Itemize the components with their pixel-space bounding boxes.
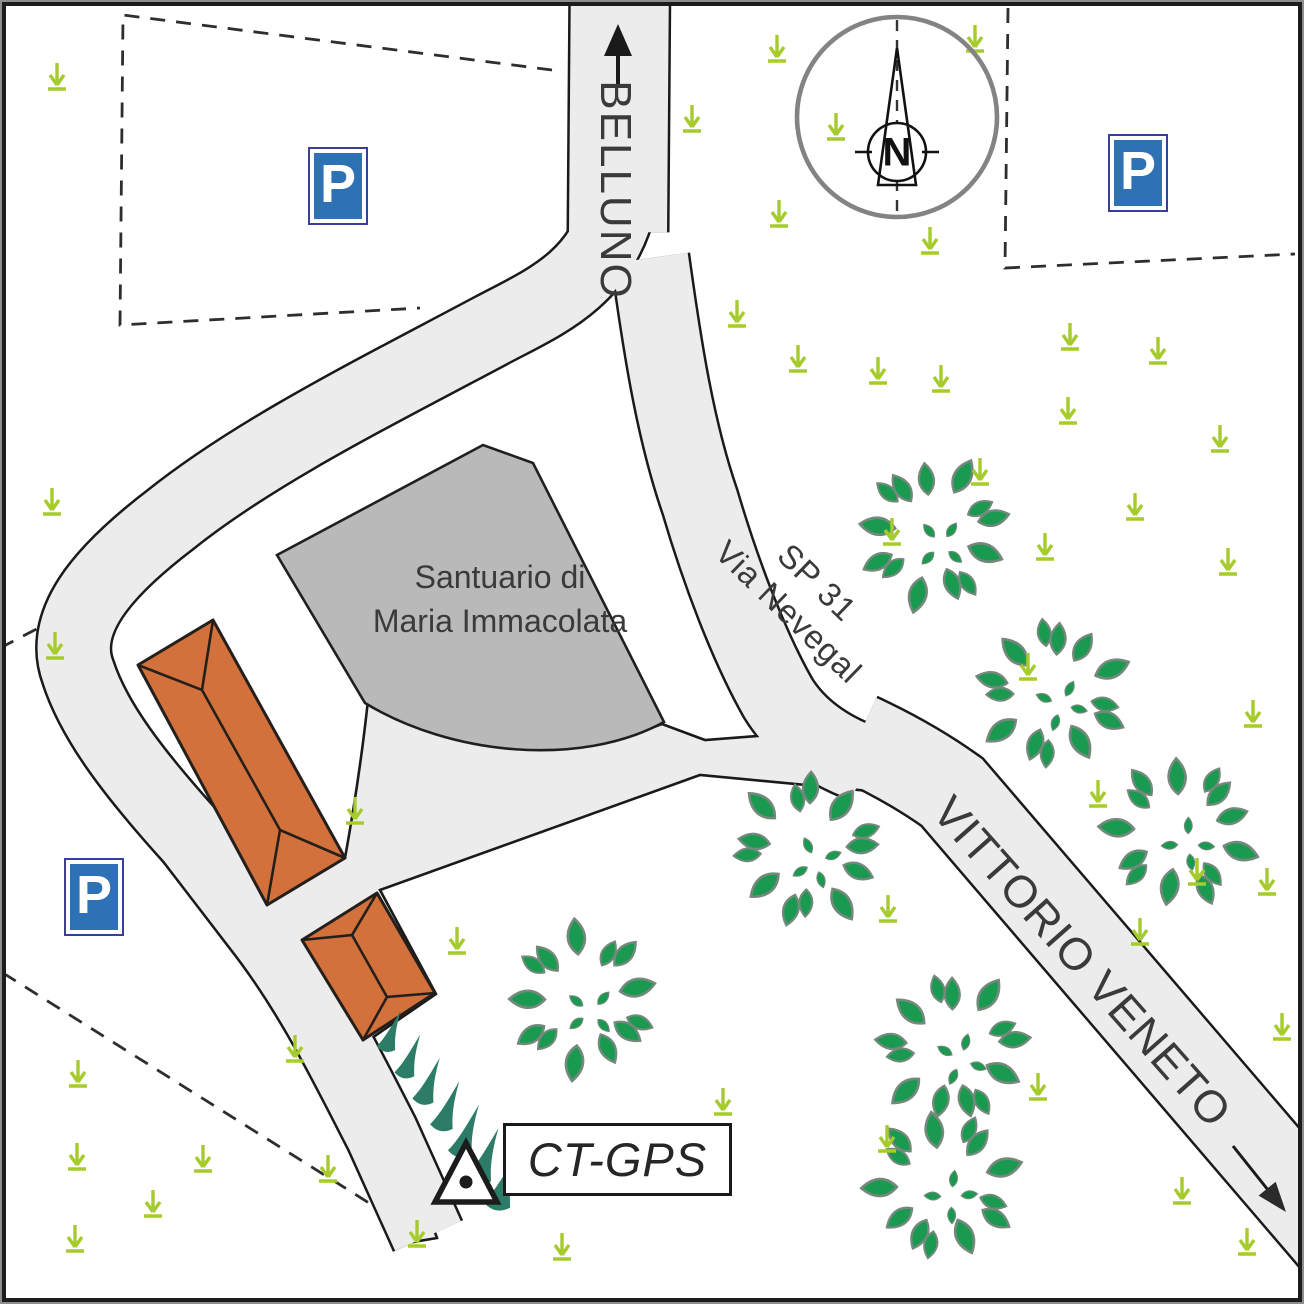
tree-leaf: [861, 1178, 897, 1196]
grass-tuft-icon: [1238, 1228, 1256, 1254]
tree-leaf: [841, 858, 876, 884]
grass-tuft-icon: [48, 63, 66, 89]
tree-inner-leaf: [801, 836, 815, 854]
grass-tuft-icon: [1173, 1177, 1191, 1203]
tree-leaf: [1215, 804, 1250, 828]
grass-tuft-icon: [43, 488, 61, 514]
parking-sign-face: P: [1114, 140, 1162, 206]
tree-inner-leaf: [961, 1190, 978, 1200]
tree-leaf: [566, 918, 587, 955]
grass-tuft-icon: [1029, 1073, 1047, 1099]
tree-inner-leaf: [1186, 853, 1196, 871]
site-map: BELLUNO SP 31Via Nevegal VITTORIO VENETO…: [0, 0, 1304, 1304]
tree-inner-leaf: [824, 849, 842, 862]
parking-sign-face: P: [314, 153, 362, 219]
grass-tuft-icon: [714, 1088, 732, 1114]
tree-inner-leaf: [919, 549, 936, 566]
tree-leaf: [745, 867, 783, 903]
parking-sign-icon-northwest: P: [308, 147, 368, 225]
parking-sign-letter: P: [76, 868, 112, 922]
grass-tuft-icon: [1219, 548, 1237, 574]
tree-leaf: [1068, 630, 1098, 665]
tree-leaf: [509, 991, 545, 1008]
tree-leaf: [917, 462, 936, 495]
tree-leaf: [737, 831, 770, 851]
tree-icon: [509, 918, 657, 1082]
tree-inner-leaf: [568, 1015, 586, 1031]
tree-inner-leaf: [944, 521, 960, 539]
grass-tuft-icon: [971, 458, 989, 484]
tree-leaf: [799, 889, 813, 917]
grass-tuft-icon: [1089, 780, 1107, 806]
tree-leaf: [905, 576, 930, 615]
building-label-sanctuary: Santuario diMaria Immacolata: [373, 555, 627, 643]
tree-leaf: [923, 1111, 945, 1149]
grass-tuft-icon: [1126, 493, 1144, 519]
grass-tuft-icon: [932, 365, 950, 391]
tree-leaf: [972, 975, 1006, 1014]
grass-tuft-icon: [1273, 1013, 1291, 1039]
tree-inner-leaf: [791, 864, 809, 879]
tree-leaf: [846, 837, 879, 854]
tree-leaf: [743, 787, 780, 824]
tree-inner-leaf: [936, 1043, 954, 1058]
tree-icon: [859, 457, 1011, 615]
compass-rose-icon: [797, 17, 997, 217]
tree-inner-leaf: [921, 522, 938, 540]
hedge-spike-icon: [411, 1054, 444, 1108]
grass-tuft-icon: [1059, 397, 1077, 423]
grass-tuft-icon: [770, 200, 788, 226]
tree-leaf: [985, 1154, 1024, 1180]
grass-tuft-icon: [827, 113, 845, 139]
tree-inner-leaf: [595, 989, 612, 1007]
road-label-belluno: BELLUNO: [590, 80, 640, 299]
grass-tuft-icon: [1244, 700, 1262, 726]
tree-leaf: [983, 1058, 1023, 1089]
tree-inner-leaf: [1161, 841, 1178, 850]
tree-leaf: [887, 1073, 925, 1110]
tree-leaf: [1098, 818, 1135, 837]
tree-leaf: [966, 539, 1005, 568]
parking-sign-icon-west: P: [64, 858, 124, 936]
tree-inner-leaf: [946, 1068, 960, 1086]
tree-leaf: [882, 1202, 916, 1233]
grass-tuft-icon: [921, 227, 939, 253]
building-label-line1: Santuario di: [415, 559, 586, 595]
tree-inner-leaf: [595, 1017, 612, 1034]
tree-icon: [874, 974, 1031, 1118]
grass-tuft-icon: [1061, 323, 1079, 349]
tree-leaf: [947, 457, 979, 496]
tree-inner-leaf: [924, 1192, 941, 1201]
tree-inner-leaf: [1198, 841, 1215, 851]
tree-leaf: [564, 1044, 586, 1082]
grass-tuft-icon: [683, 105, 701, 131]
tree-leaf: [956, 1084, 978, 1118]
tree-inner-leaf: [969, 1060, 987, 1073]
parking-sign-letter: P: [320, 157, 356, 211]
grass-tuft-icon: [448, 927, 466, 953]
tree-leaf: [1064, 722, 1096, 761]
tree-inner-leaf: [1062, 680, 1077, 698]
tree-inner-leaf: [1035, 691, 1053, 705]
grass-tuft-icon: [789, 345, 807, 371]
grass-tuft-icon: [1149, 337, 1167, 363]
hedge-spike-icon: [429, 1077, 464, 1134]
tree-leaf: [825, 884, 858, 923]
tree-icon: [733, 771, 881, 927]
grass-tuft-icon: [1036, 533, 1054, 559]
tree-leaf: [1168, 758, 1187, 795]
grass-tuft-icon: [728, 300, 746, 326]
hedge-spike-icon: [394, 1030, 425, 1080]
tree-leaf: [779, 893, 802, 927]
tree-inner-leaf: [1184, 817, 1192, 834]
tree-leaf: [1158, 868, 1181, 906]
tree-leaf: [982, 713, 1021, 748]
grass-tuft-icon: [194, 1145, 212, 1171]
compass-north-label: N: [883, 131, 912, 176]
grass-tuft-icon: [768, 35, 786, 61]
tree-leaf: [945, 978, 960, 1010]
tree-inner-leaf: [1070, 703, 1088, 714]
grass-tuft-icon: [879, 895, 897, 921]
grass-tuft-icon: [144, 1190, 162, 1216]
building-label-line2: Maria Immacolata: [373, 603, 627, 639]
tree-leaf: [594, 1031, 622, 1066]
parking-sign-icon-northeast: P: [1108, 134, 1168, 212]
gps-marker-label: CT-GPS: [528, 1132, 707, 1187]
tree-inner-leaf: [1049, 714, 1062, 732]
tree-leaf: [986, 688, 1014, 702]
grass-tuft-icon: [869, 357, 887, 383]
tree-inner-leaf: [567, 993, 585, 1009]
tree-inner-leaf: [960, 1033, 972, 1051]
grass-tuft-icon: [69, 1060, 87, 1086]
grass-tuft-icon: [553, 1233, 571, 1259]
grass-tuft-icon: [319, 1155, 337, 1181]
tree-inner-leaf: [947, 1207, 955, 1224]
tree-inner-leaf: [949, 1170, 959, 1187]
grass-tuft-icon: [1258, 868, 1276, 894]
gps-marker-label-box: CT-GPS: [503, 1123, 732, 1196]
tree-leaf: [892, 993, 930, 1029]
grass-tuft-icon: [66, 1225, 84, 1251]
parking-sign-letter: P: [1120, 144, 1156, 198]
tree-icon: [1098, 758, 1261, 907]
tree-leaf: [1221, 838, 1260, 865]
tree-leaf: [950, 1217, 980, 1256]
parking-sign-face: P: [70, 864, 118, 930]
tree-leaf: [1092, 654, 1131, 683]
grass-tuft-icon: [68, 1143, 86, 1169]
tree-icon: [975, 618, 1132, 768]
tree-inner-leaf: [946, 549, 964, 566]
grass-tuft-icon: [1211, 425, 1229, 451]
tree-leaf: [1049, 622, 1067, 655]
tree-inner-leaf: [815, 871, 827, 889]
tree-leaf: [618, 975, 657, 1000]
